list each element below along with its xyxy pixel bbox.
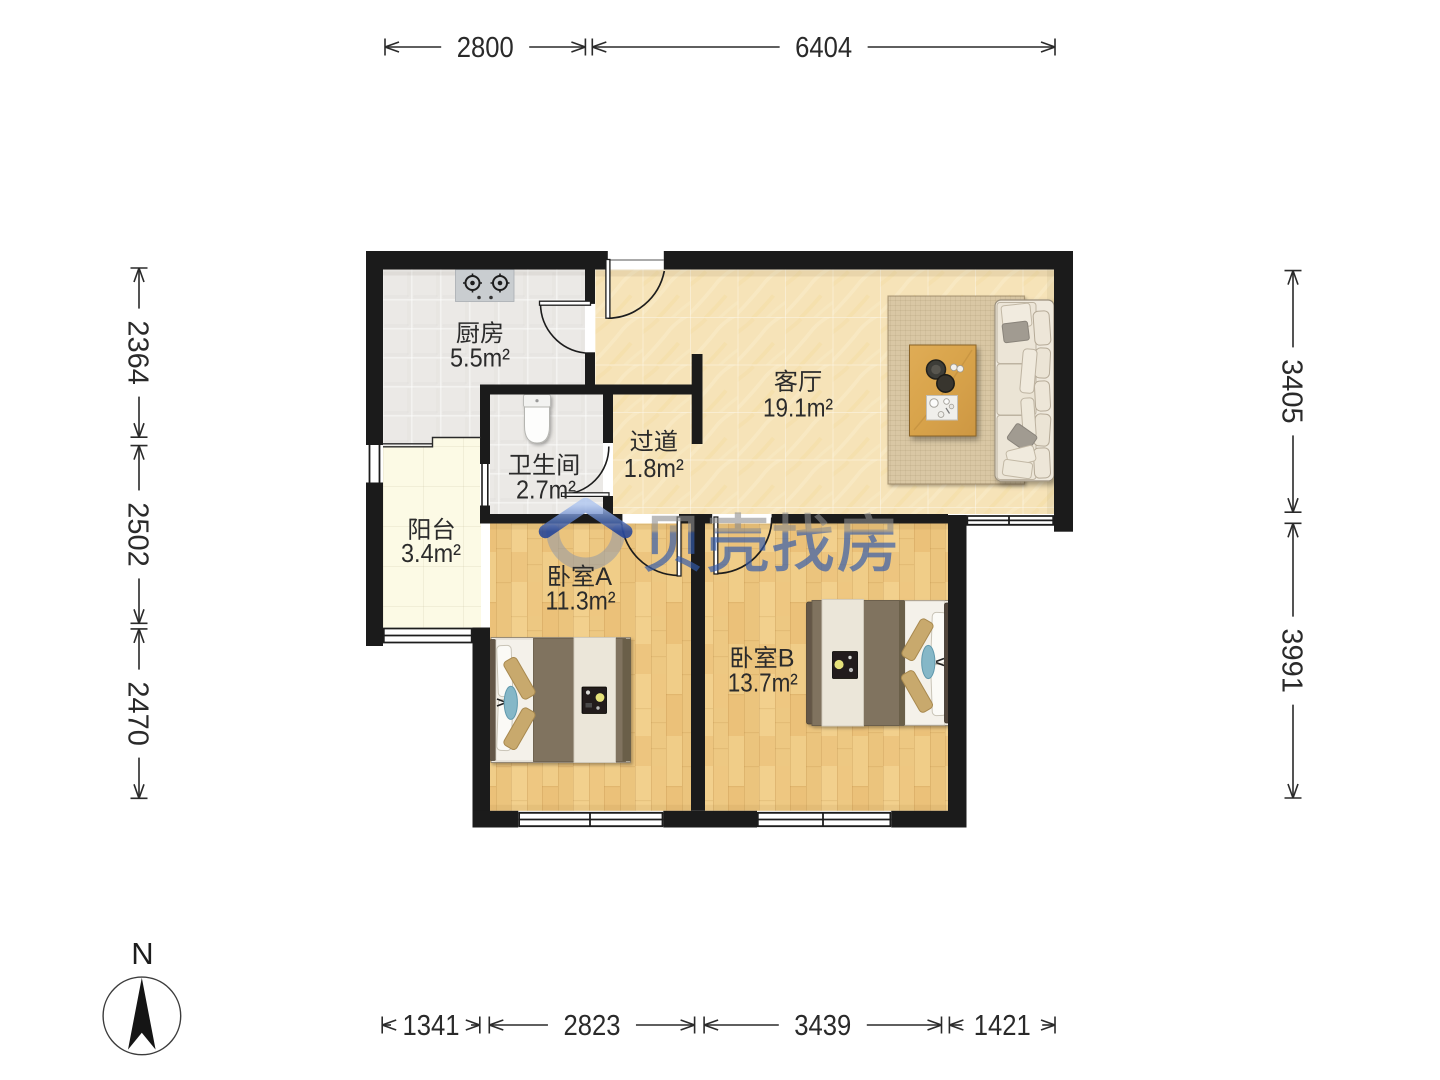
svg-text:1421: 1421 xyxy=(974,1010,1031,1042)
svg-text:2823: 2823 xyxy=(563,1010,620,1042)
svg-text:2364: 2364 xyxy=(122,320,154,385)
svg-text:3439: 3439 xyxy=(794,1010,851,1042)
svg-text:2800: 2800 xyxy=(457,32,514,64)
svg-text:N: N xyxy=(131,936,153,971)
svg-text:6404: 6404 xyxy=(795,32,852,64)
svg-text:2502: 2502 xyxy=(122,502,154,567)
svg-text:11.3m²: 11.3m² xyxy=(546,585,616,615)
svg-text:1341: 1341 xyxy=(403,1010,460,1042)
svg-text:1.8m²: 1.8m² xyxy=(624,453,684,483)
svg-text:13.7m²: 13.7m² xyxy=(728,667,798,697)
svg-text:3405: 3405 xyxy=(1276,359,1308,424)
svg-text:2470: 2470 xyxy=(122,681,154,746)
svg-text:3991: 3991 xyxy=(1276,628,1308,693)
svg-text:5.5m²: 5.5m² xyxy=(450,342,510,372)
svg-text:19.1m²: 19.1m² xyxy=(763,392,833,422)
svg-text:2.7m²: 2.7m² xyxy=(516,474,576,504)
svg-text:3.4m²: 3.4m² xyxy=(401,538,461,568)
